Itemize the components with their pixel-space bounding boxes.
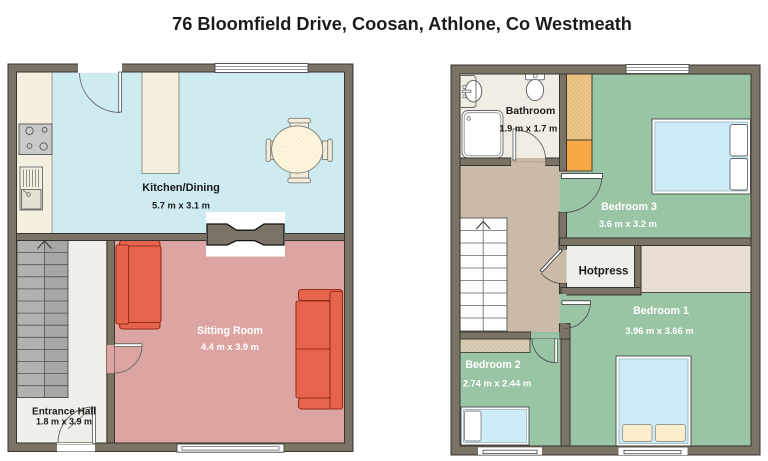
- svg-text:3.96 m x 3.66 m: 3.96 m x 3.66 m: [625, 326, 693, 336]
- svg-text:Bedroom 2: Bedroom 2: [465, 359, 520, 371]
- svg-text:Kitchen/Dining: Kitchen/Dining: [142, 182, 220, 194]
- svg-text:Bedroom 1: Bedroom 1: [633, 305, 689, 317]
- svg-text:Hotpress: Hotpress: [579, 266, 629, 278]
- svg-text:1.8 m x 3.9 m: 1.8 m x 3.9 m: [36, 417, 92, 427]
- svg-text:4.4 m x 3.9 m: 4.4 m x 3.9 m: [201, 342, 259, 352]
- svg-text:2.74 m x 2.44 m: 2.74 m x 2.44 m: [463, 379, 531, 389]
- svg-text:Bathroom: Bathroom: [506, 105, 556, 117]
- svg-text:76 Bloomfield Drive, Coosan, A: 76 Bloomfield Drive, Coosan, Athlone, Co…: [172, 14, 632, 34]
- svg-text:3.6 m x 3.2 m: 3.6 m x 3.2 m: [599, 219, 657, 229]
- svg-text:Bedroom 3: Bedroom 3: [601, 201, 657, 213]
- svg-text:5.7 m x 3.1 m: 5.7 m x 3.1 m: [152, 201, 210, 211]
- svg-text:Sitting Room: Sitting Room: [197, 325, 263, 337]
- svg-text:1.9 m x 1.7 m: 1.9 m x 1.7 m: [499, 124, 557, 134]
